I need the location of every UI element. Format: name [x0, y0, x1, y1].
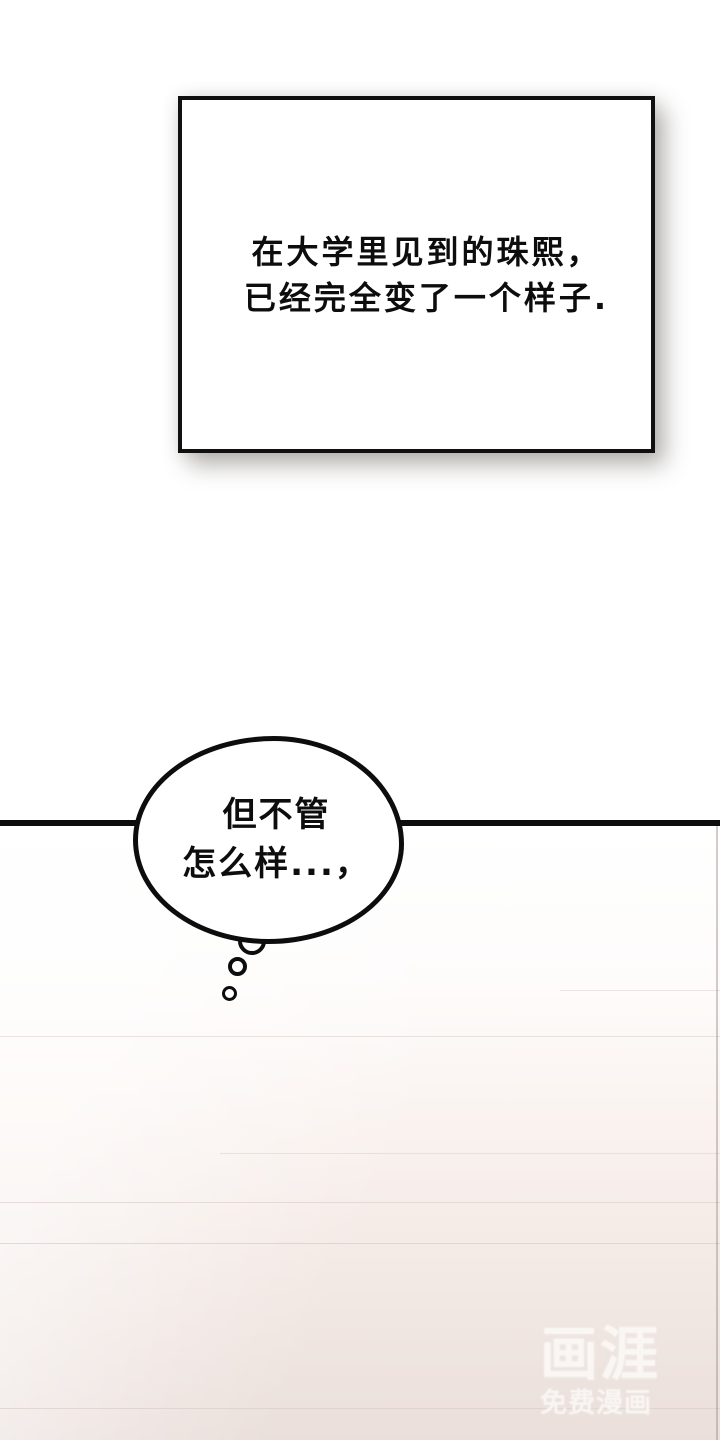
wall-line [0, 1036, 720, 1037]
wall-line [0, 1202, 720, 1203]
thought-trail-circle [222, 986, 237, 1001]
thought-bubble: 但不管 怎么样...， [133, 736, 404, 944]
watermark: 画涯 免费漫画 [540, 1322, 660, 1419]
narration-caption-box: 在大学里见到的珠熙， 已经完全变了一个样子. [178, 96, 655, 453]
narration-text-line-1: 在大学里见到的珠熙， [251, 229, 601, 275]
wall-line [560, 990, 720, 991]
narration-text-line-2: 已经完全变了一个样子. [244, 275, 609, 321]
comic-page: 在大学里见到的珠熙， 已经完全变了一个样子. 但不管 怎么样...， 画涯 免费… [0, 0, 720, 1440]
wall-corner-line [716, 826, 718, 1440]
watermark-tagline: 免费漫画 [540, 1389, 660, 1419]
wall-line [220, 1153, 720, 1154]
wall-line [0, 1243, 720, 1244]
thought-text-line-2: 怎么样...， [182, 840, 371, 889]
watermark-logo: 画涯 [540, 1322, 660, 1386]
thought-text-line-1: 但不管 [223, 791, 331, 840]
thought-trail-circle [228, 957, 247, 976]
